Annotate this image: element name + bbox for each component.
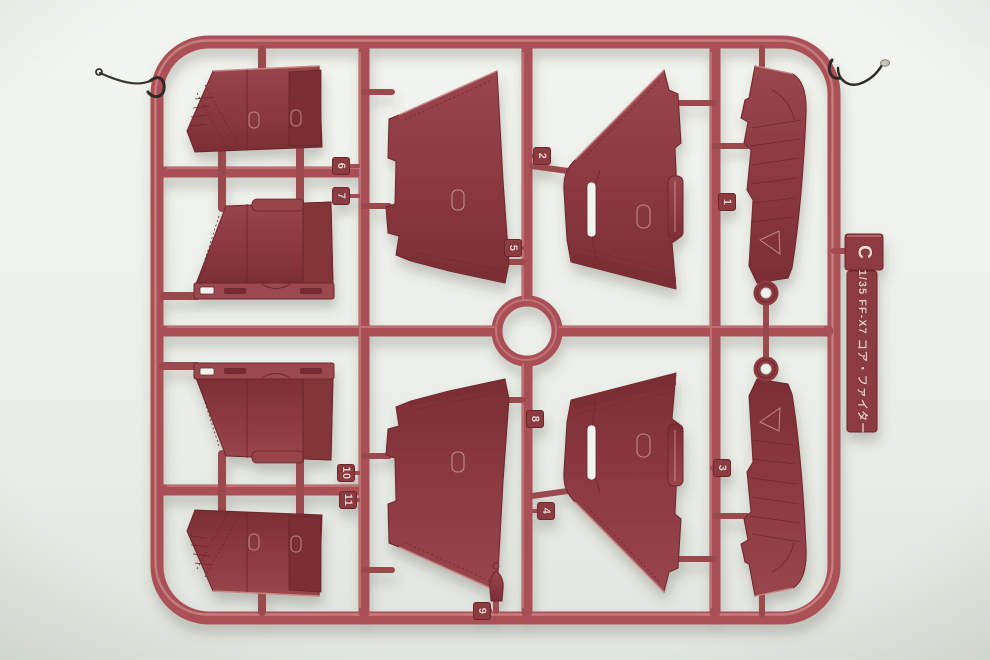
part-tag-3: 3 bbox=[714, 460, 731, 477]
part-tag-11-number: 11 bbox=[342, 494, 354, 507]
part-tag-11: 11 bbox=[340, 492, 357, 509]
part-1-eyelet-hole bbox=[762, 289, 771, 298]
part-7-top-tab bbox=[252, 199, 304, 211]
part-tag-2: 2 bbox=[534, 148, 551, 165]
part-tag-4: 4 bbox=[538, 503, 555, 520]
part-tag-5-number: 5 bbox=[507, 245, 519, 252]
part-tag-2-number: 2 bbox=[536, 153, 548, 160]
gate-label: C 1/35 FF-X7 コア・ファイター bbox=[845, 234, 883, 434]
part-tag-6: 6 bbox=[333, 158, 350, 175]
part-tag-4-number: 4 bbox=[540, 508, 552, 515]
part-7-slot-hole bbox=[200, 287, 214, 294]
part-7-slot bbox=[300, 288, 322, 294]
part-tag-9-number: 9 bbox=[476, 608, 488, 615]
gate-letter: C bbox=[854, 245, 875, 259]
part-2-slot-hole bbox=[587, 182, 596, 237]
part-tag-8: 8 bbox=[527, 411, 544, 428]
part-6-inset bbox=[289, 70, 321, 146]
part-7-slot bbox=[224, 288, 246, 294]
part-tag-9: 9 bbox=[474, 603, 491, 620]
sprue-photo-canvas: C 1/35 FF-X7 コア・ファイター 1 2 3 bbox=[0, 0, 990, 660]
part-tag-10-number: 10 bbox=[340, 466, 352, 479]
part-tag-1-number: 1 bbox=[721, 199, 733, 206]
part-tag-5: 5 bbox=[505, 240, 522, 257]
part-tag-3-number: 3 bbox=[716, 465, 728, 472]
part-tag-7-number: 7 bbox=[335, 193, 347, 200]
part-tag-10: 10 bbox=[338, 465, 355, 482]
part-tag-6-number: 6 bbox=[335, 163, 347, 170]
part-tag-7: 7 bbox=[333, 188, 350, 205]
photo-model-kit-sprue: C 1/35 FF-X7 コア・ファイター 1 2 3 bbox=[0, 0, 990, 660]
gate-label-text: 1/35 FF-X7 コア・ファイター bbox=[856, 270, 869, 435]
part-tag-8-number: 8 bbox=[529, 416, 541, 423]
part-tag-1: 1 bbox=[719, 194, 736, 211]
wire-right-crimp bbox=[881, 60, 890, 66]
